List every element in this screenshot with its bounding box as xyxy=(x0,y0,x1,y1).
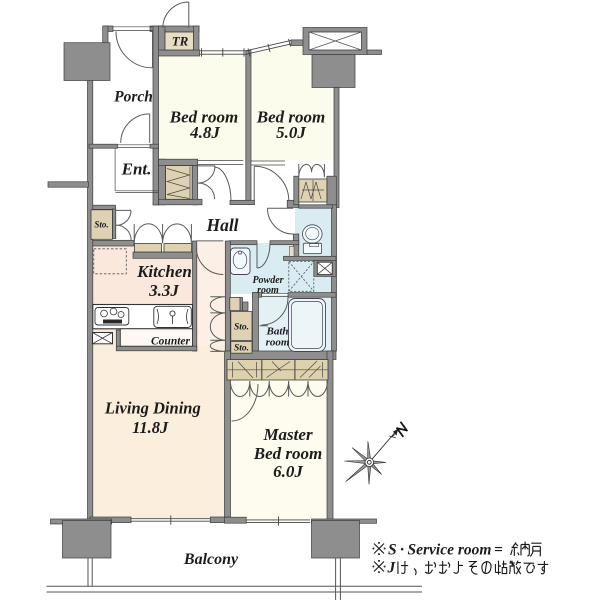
svg-text:11.8J: 11.8J xyxy=(132,418,169,437)
svg-text:room: room xyxy=(257,285,279,296)
svg-text:Hall: Hall xyxy=(205,215,238,235)
svg-text:3.3J: 3.3J xyxy=(148,281,179,300)
svg-text:Porch: Porch xyxy=(114,89,153,106)
svg-text:Master: Master xyxy=(262,425,313,444)
svg-text:Sto.: Sto. xyxy=(234,322,249,332)
svg-text:6.0J: 6.0J xyxy=(273,462,303,481)
svg-text:Ent.: Ent. xyxy=(121,160,152,179)
svg-text:Bed room: Bed room xyxy=(253,444,322,463)
svg-text:TR: TR xyxy=(172,34,189,49)
svg-text:room: room xyxy=(266,337,290,349)
svg-text:Counter: Counter xyxy=(151,336,191,348)
svg-text:Balcony: Balcony xyxy=(183,551,239,568)
svg-text:J: J xyxy=(387,560,397,577)
svg-text:Sto.: Sto. xyxy=(234,344,249,354)
svg-text:Kitchen: Kitchen xyxy=(136,262,192,281)
svg-text:5.0J: 5.0J xyxy=(276,123,306,142)
svg-text:4.8J: 4.8J xyxy=(189,123,220,142)
svg-text:Living Dining: Living Dining xyxy=(104,399,201,418)
svg-text:Sto.: Sto. xyxy=(94,219,108,229)
